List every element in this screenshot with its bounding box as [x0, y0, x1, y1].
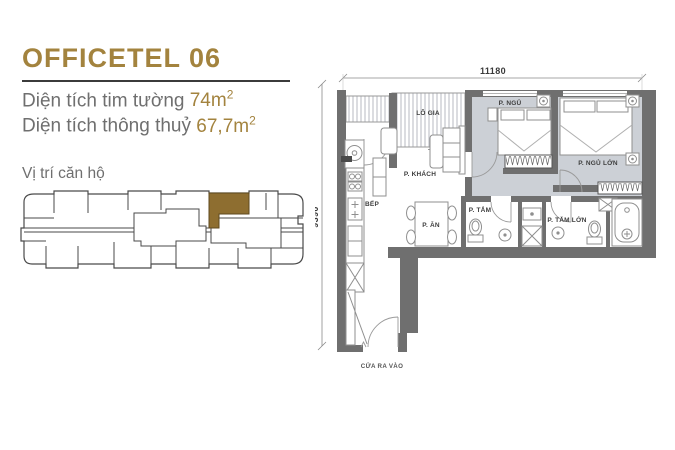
- apartment-info-panel: OFFICETEL 06 Diện tích tim tường 74m2 Di…: [22, 44, 312, 183]
- sink-icon: [499, 229, 511, 241]
- entrance-door-icon: [368, 317, 398, 347]
- ac-ledge: [346, 96, 392, 122]
- dining-area: P. ĂN: [407, 202, 457, 246]
- entrance-corridor: CỬA RA VÀO: [346, 290, 403, 370]
- coffee-table-icon: [430, 135, 443, 168]
- unit-location-label: Vị trí căn hộ: [22, 165, 312, 183]
- sink-icon: [552, 227, 564, 239]
- floor-plan-drawing: 11180 9390 LÔ GIA: [315, 50, 675, 390]
- bathroom: P. TẮM: [468, 202, 511, 242]
- area-line-gross: Diện tích tim tường 74m2: [22, 88, 312, 114]
- room-label-master-bedroom: P. NGỦ LỚN: [578, 158, 618, 167]
- room-label-dining: P. ĂN: [422, 220, 440, 229]
- room-label-balcony: LÔ GIA: [416, 108, 440, 117]
- entrance-label: CỬA RA VÀO: [361, 363, 403, 370]
- page-title: OFFICETEL 06: [22, 44, 312, 74]
- area-line-net: Diện tích thông thuỷ 67,7m2: [22, 113, 312, 139]
- room-label-bedroom: P. NGỦ: [499, 98, 522, 107]
- toilet-icon: [587, 221, 602, 244]
- title-underline: [22, 80, 290, 82]
- technical-shaft: [522, 208, 542, 246]
- building-locator-diagram: [16, 186, 310, 281]
- ac-unit-icon: [537, 95, 550, 107]
- washer-icon: [345, 140, 364, 168]
- toilet-icon: [468, 219, 483, 242]
- area-lines: Diện tích tim tường 74m2 Diện tích thông…: [22, 88, 312, 139]
- room-label-master-bathroom: P. TẮM LỚN: [547, 215, 586, 224]
- room-label-bathroom: P. TẮM: [469, 205, 491, 214]
- nightstand-icon: [488, 108, 497, 121]
- room-label-kitchen: BẾP: [365, 198, 379, 208]
- armchair-icon: [381, 128, 397, 154]
- dimension-height-label: 9390: [315, 206, 320, 228]
- ac-unit-icon: [626, 95, 639, 107]
- master-bathroom: P. TẮM LỚN: [547, 198, 642, 246]
- dimension-width-label: 11180: [480, 66, 506, 76]
- floor-plan-page: { "colors": { "accent_gold": "#a3833e", …: [0, 0, 675, 450]
- ac-unit-icon: [626, 153, 639, 165]
- bathtub-icon: [612, 199, 642, 246]
- room-label-living: P. KHÁCH: [404, 169, 436, 178]
